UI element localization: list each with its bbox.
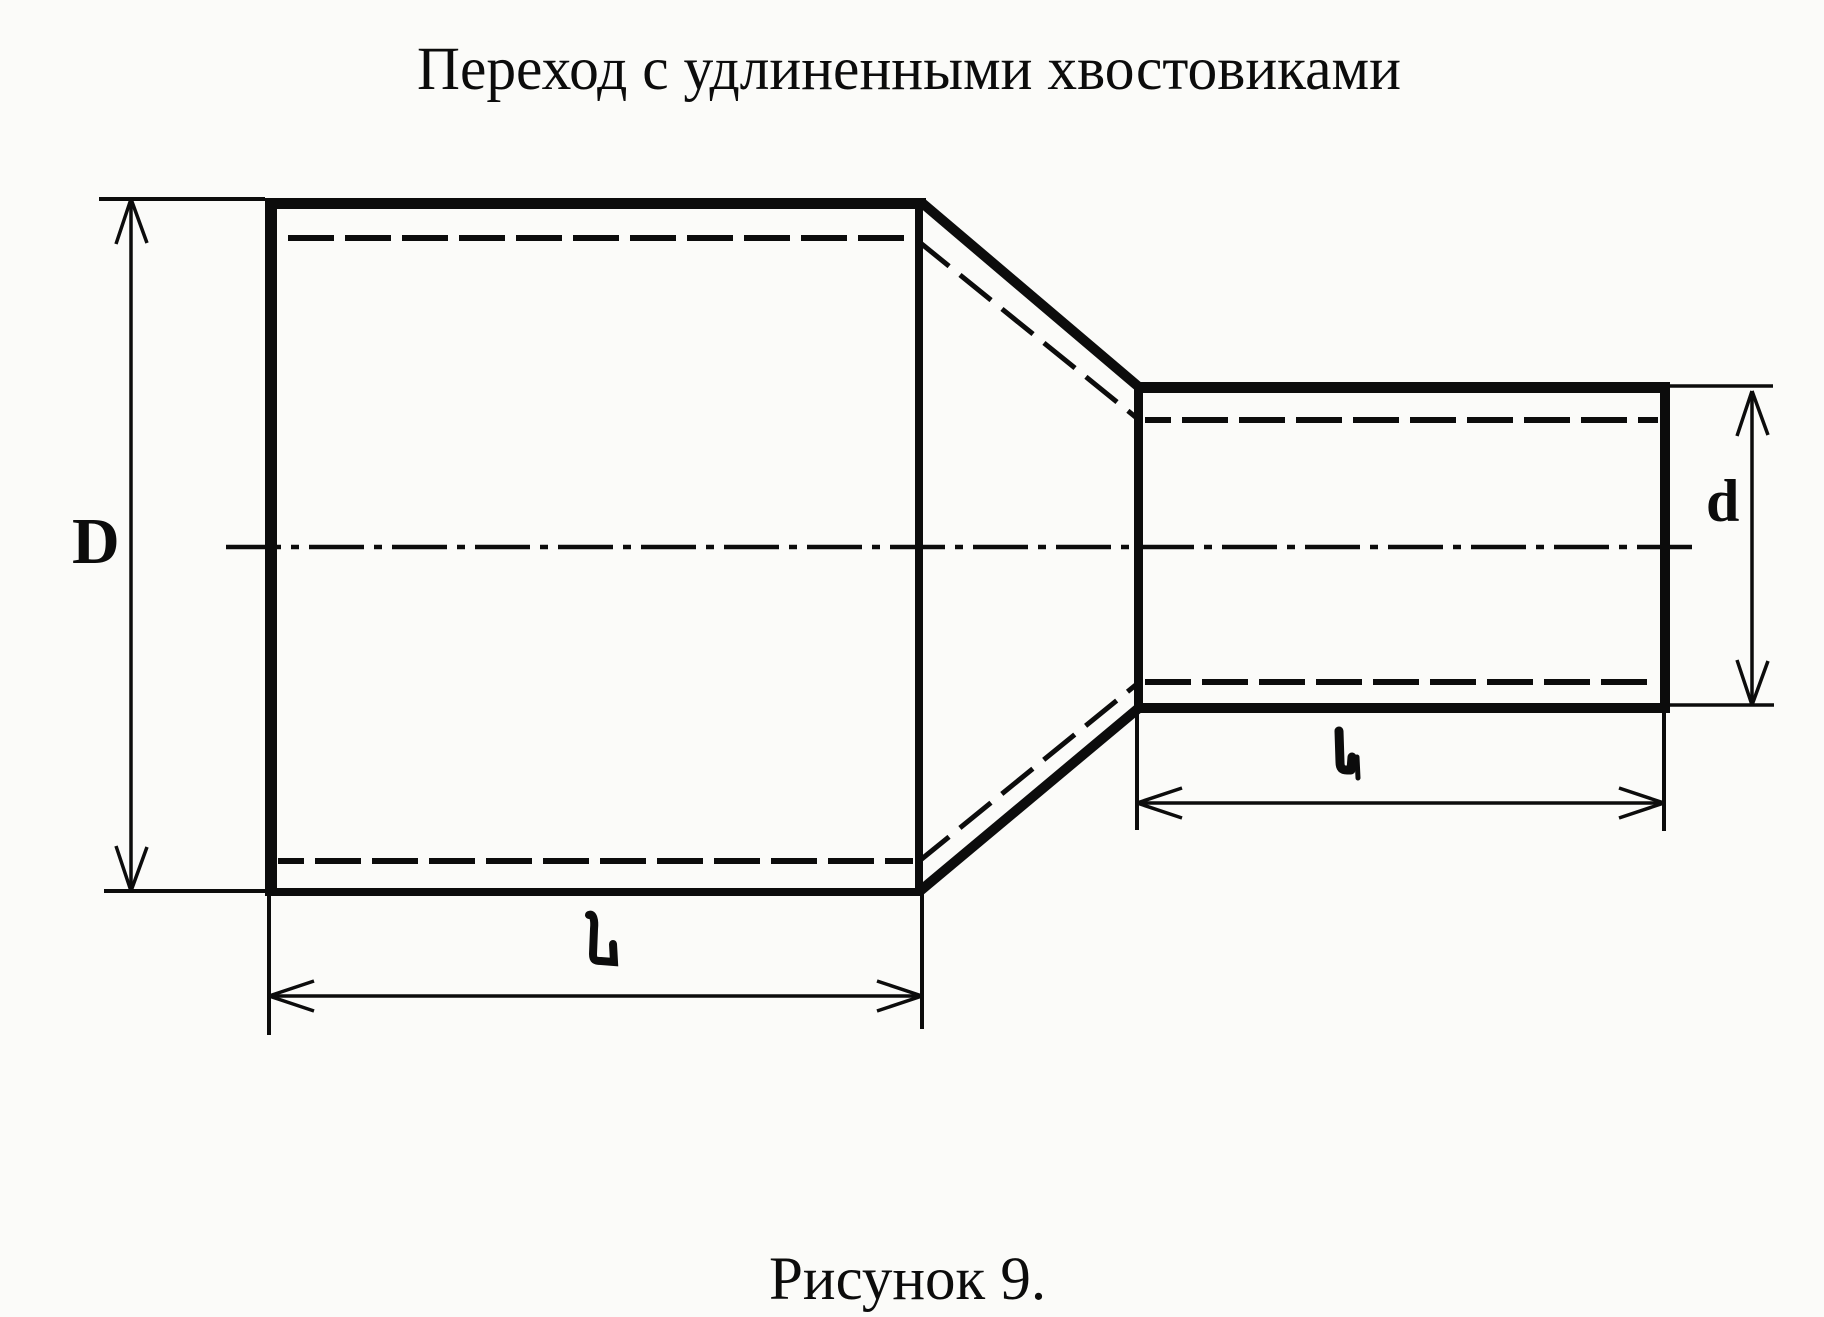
svg-text:d: d [1706,468,1739,534]
svg-text:Рисунок 9.: Рисунок 9. [769,1246,1046,1313]
svg-text:Переход с удлиненными хвостови: Переход с удлиненными хвостовиками [417,36,1401,103]
svg-text:D: D [72,505,120,578]
